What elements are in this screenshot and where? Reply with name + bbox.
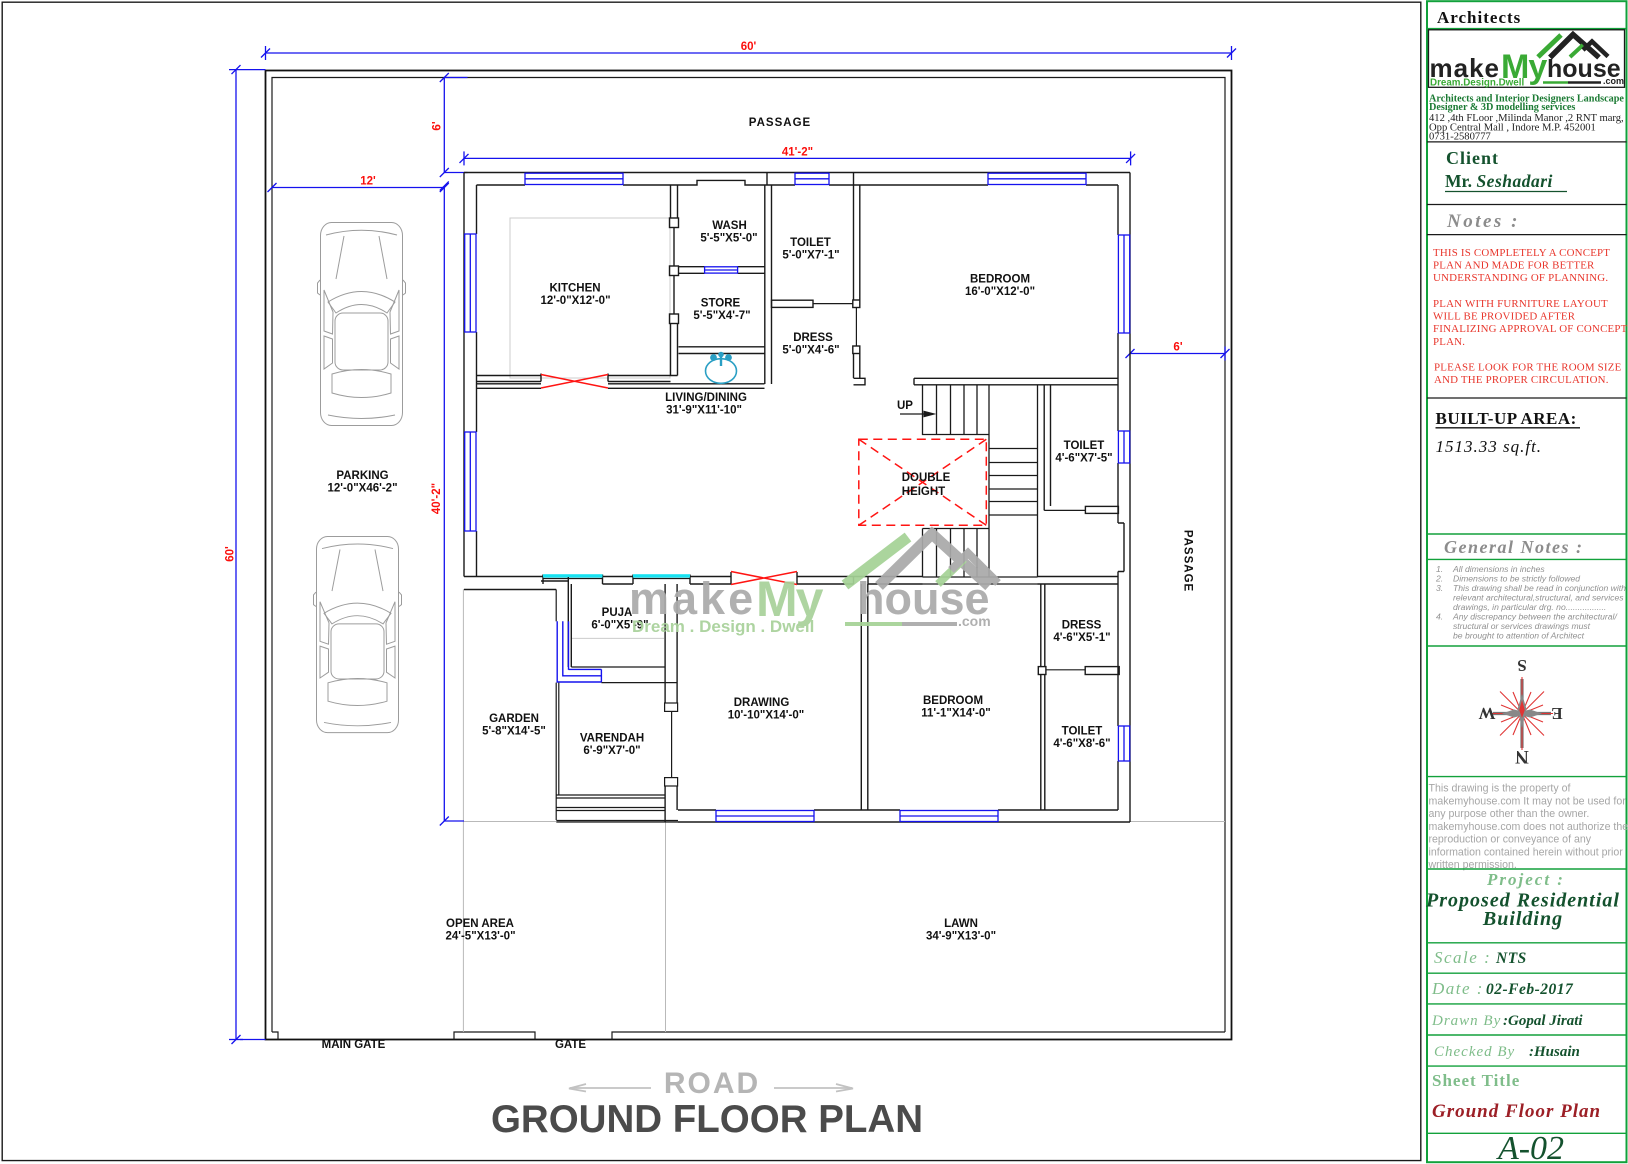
svg-text:A-02: A-02 xyxy=(1496,1130,1564,1164)
svg-text:24'-5"X13'-0": 24'-5"X13'-0" xyxy=(445,931,515,943)
svg-text:4.: 4. xyxy=(1436,612,1443,622)
svg-text:02-Feb-2017: 02-Feb-2017 xyxy=(1486,981,1574,998)
svg-text:5'-5"X4'-7": 5'-5"X4'-7" xyxy=(693,310,750,322)
svg-text:GATE: GATE xyxy=(555,1039,586,1051)
svg-text:BUILT-UP AREA:: BUILT-UP AREA: xyxy=(1436,409,1577,428)
svg-text:11'-1"X14'-0": 11'-1"X14'-0" xyxy=(921,708,990,720)
svg-text:6'-9"X7'-0": 6'-9"X7'-0" xyxy=(583,745,640,757)
svg-text:PUJA: PUJA xyxy=(602,607,633,619)
svg-text:OPEN AREA: OPEN AREA xyxy=(446,918,514,930)
svg-text:VARENDAH: VARENDAH xyxy=(580,733,644,745)
svg-text:6': 6' xyxy=(432,121,444,130)
svg-text:NTS: NTS xyxy=(1495,950,1527,967)
svg-text:W: W xyxy=(1479,704,1496,723)
svg-text:PLAN WITH FURNITURE LAYOUT: PLAN WITH FURNITURE LAYOUT xyxy=(1433,298,1608,310)
svg-text:makemyhouse.com It may not be: makemyhouse.com It may not be used for xyxy=(1429,795,1627,807)
svg-text:PASSAGE: PASSAGE xyxy=(1182,530,1194,592)
svg-text:.com: .com xyxy=(958,613,991,629)
svg-text:N: N xyxy=(1515,746,1529,767)
svg-text:TOILET: TOILET xyxy=(790,237,831,249)
svg-text:DRESS: DRESS xyxy=(1062,620,1102,632)
svg-text:LAWN: LAWN xyxy=(944,918,978,930)
svg-text:This drawing shall be read in: This drawing shall be read in conjunctio… xyxy=(1453,583,1626,593)
svg-text:5'-0"X7'-1": 5'-0"X7'-1" xyxy=(782,250,839,262)
svg-text:1.: 1. xyxy=(1436,564,1443,574)
svg-text:All dimensions in inches: All dimensions in inches xyxy=(1452,564,1545,574)
svg-text:LIVING/DINING: LIVING/DINING xyxy=(665,392,747,404)
svg-text:structural or services drawing: structural or services drawings must xyxy=(1453,621,1591,631)
svg-text:5'-5"X5'-0": 5'-5"X5'-0" xyxy=(700,233,757,245)
svg-text:Dimensions to be strictly foll: Dimensions to be strictly followed xyxy=(1453,574,1580,584)
svg-text:TOILET: TOILET xyxy=(1062,726,1103,738)
svg-text:WASH: WASH xyxy=(712,220,747,232)
svg-text::Gopal Jirati: :Gopal Jirati xyxy=(1503,1013,1583,1029)
svg-text:10'-10"X14'-0": 10'-10"X14'-0" xyxy=(728,710,804,722)
svg-text:HEIGHT: HEIGHT xyxy=(902,486,945,498)
svg-text:Project :: Project : xyxy=(1486,870,1565,889)
svg-text:Scale :: Scale : xyxy=(1434,948,1491,967)
svg-text:16'-0"X12'-0": 16'-0"X12'-0" xyxy=(965,286,1035,298)
svg-text:makemyhouse.com does not autho: makemyhouse.com does not authorize the xyxy=(1429,821,1628,833)
svg-text:relevant architectural,structu: relevant architectural,structural, and s… xyxy=(1453,593,1624,603)
svg-text::Husain: :Husain xyxy=(1529,1044,1580,1060)
svg-text:Any discrepancy between the ar: Any discrepancy between the architectura… xyxy=(1452,612,1618,622)
svg-text:information contained herein w: information contained herein without pri… xyxy=(1429,847,1624,859)
svg-text:GROUND FLOOR PLAN: GROUND FLOOR PLAN xyxy=(491,1098,923,1141)
svg-text:40'-2": 40'-2" xyxy=(431,483,443,514)
svg-text:PLAN AND MADE FOR BETTER: PLAN AND MADE FOR BETTER xyxy=(1433,260,1595,272)
svg-text:This drawing is the property o: This drawing is the property of xyxy=(1429,783,1571,795)
svg-text:Building: Building xyxy=(1482,908,1563,930)
svg-text:FINALIZING APPROVAL OF CONCEPT: FINALIZING APPROVAL OF CONCEPT xyxy=(1433,323,1628,335)
svg-text:1513.33 sq.ft.: 1513.33 sq.ft. xyxy=(1436,437,1543,456)
svg-text:be brought to attention of Arc: be brought to attention of Architect xyxy=(1453,631,1585,641)
svg-text:6': 6' xyxy=(1173,342,1182,354)
svg-text:34'-9"X13'-0": 34'-9"X13'-0" xyxy=(926,931,996,943)
svg-text:31'-9"X11'-10": 31'-9"X11'-10" xyxy=(666,405,742,417)
svg-text:PLAN.: PLAN. xyxy=(1433,336,1465,348)
svg-text:MAIN GATE: MAIN GATE xyxy=(322,1039,386,1051)
svg-text:Dream . Design . Dwell: Dream . Design . Dwell xyxy=(632,617,814,636)
svg-text:TOILET: TOILET xyxy=(1064,440,1105,452)
svg-text:Date :: Date : xyxy=(1431,979,1484,998)
svg-text:Client: Client xyxy=(1446,148,1499,168)
svg-text:THIS IS COMPLETELY A CONCEPT: THIS IS COMPLETELY A CONCEPT xyxy=(1433,247,1610,259)
svg-text:KITCHEN: KITCHEN xyxy=(549,283,600,295)
svg-text:BEDROOM: BEDROOM xyxy=(923,695,983,707)
svg-text:UNDERSTANDING OF PLANNING.: UNDERSTANDING OF PLANNING. xyxy=(1433,272,1608,284)
svg-text:.com: .com xyxy=(1603,76,1624,86)
svg-text:PARKING: PARKING xyxy=(336,470,388,482)
svg-text:Designer & 3D modelling servic: Designer & 3D modelling services xyxy=(1429,102,1575,113)
svg-text:12'-0"X12'-0": 12'-0"X12'-0" xyxy=(540,295,610,307)
svg-text:Checked By: Checked By xyxy=(1434,1044,1515,1060)
svg-text:4'-6"X5'-1": 4'-6"X5'-1" xyxy=(1053,632,1110,644)
svg-text:DOUBLE: DOUBLE xyxy=(902,472,951,484)
svg-text:0731-2580777: 0731-2580777 xyxy=(1429,132,1491,143)
svg-text:Notes :: Notes : xyxy=(1446,211,1520,232)
svg-text:Sheet Title: Sheet Title xyxy=(1432,1071,1520,1090)
svg-text:GARDEN: GARDEN xyxy=(489,713,539,725)
svg-text:41'-2": 41'-2" xyxy=(782,146,813,158)
svg-text:3.: 3. xyxy=(1436,583,1443,593)
svg-text:STORE: STORE xyxy=(701,298,741,310)
svg-text:S: S xyxy=(1517,656,1526,675)
svg-text:12': 12' xyxy=(360,176,376,188)
svg-text:DRAWING: DRAWING xyxy=(734,697,790,709)
svg-text:drawings, in particular drg. n: drawings, in particular drg. no.........… xyxy=(1453,602,1606,612)
svg-text:reproduction or conveyance of: reproduction or conveyance of any xyxy=(1429,834,1592,846)
svg-text:Architects: Architects xyxy=(1437,8,1521,27)
svg-text:60': 60' xyxy=(741,41,757,53)
svg-text:PLEASE LOOK FOR THE ROOM SIZE: PLEASE LOOK FOR THE ROOM SIZE xyxy=(1434,362,1622,374)
svg-text:BEDROOM: BEDROOM xyxy=(970,274,1030,286)
svg-text:E: E xyxy=(1551,704,1562,723)
svg-text:ROAD: ROAD xyxy=(664,1067,760,1100)
svg-text:DRESS: DRESS xyxy=(793,332,833,344)
svg-text:Mr. Seshadari: Mr. Seshadari xyxy=(1445,171,1553,191)
svg-text:Dream.Design.Dwell: Dream.Design.Dwell xyxy=(1430,78,1524,89)
svg-text:any purpose other than the own: any purpose other than the owner. xyxy=(1429,808,1590,820)
svg-text:Drawn By: Drawn By xyxy=(1431,1013,1501,1029)
svg-text:60': 60' xyxy=(225,546,237,562)
svg-text:4'-6"X7'-5": 4'-6"X7'-5" xyxy=(1055,453,1112,465)
svg-text:5'-0"X4'-6": 5'-0"X4'-6" xyxy=(782,345,839,357)
svg-text:General Notes :: General Notes : xyxy=(1444,537,1583,557)
svg-text:PASSAGE: PASSAGE xyxy=(749,117,811,129)
svg-text:Ground Floor Plan: Ground Floor Plan xyxy=(1432,1101,1601,1122)
svg-text:12'-0"X46'-2": 12'-0"X46'-2" xyxy=(327,483,397,495)
svg-text:UP: UP xyxy=(897,400,913,412)
svg-text:WILL BE PROVIDED AFTER: WILL BE PROVIDED AFTER xyxy=(1433,311,1576,323)
svg-text:5'-8"X14'-5": 5'-8"X14'-5" xyxy=(482,726,546,738)
svg-text:2.: 2. xyxy=(1435,574,1443,584)
svg-text:AND THE PROPER CIRCULATION.: AND THE PROPER CIRCULATION. xyxy=(1434,374,1609,386)
svg-text:4'-6"X8'-6": 4'-6"X8'-6" xyxy=(1053,738,1110,750)
